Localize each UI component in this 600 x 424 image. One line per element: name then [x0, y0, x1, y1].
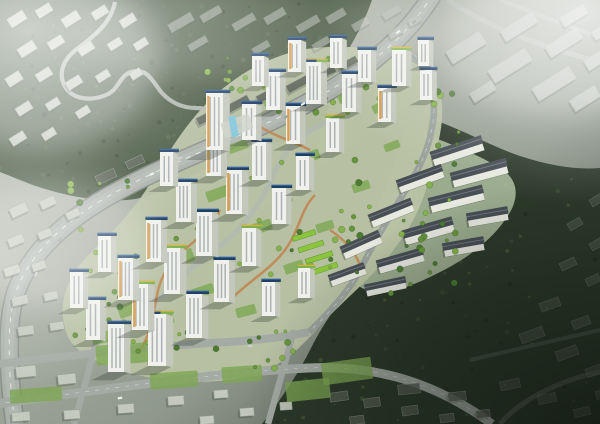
aerial-rendering — [0, 0, 600, 424]
fog-overlays — [0, 0, 600, 424]
rendering-canvas — [0, 0, 600, 424]
vignette-bottomright — [0, 0, 600, 424]
